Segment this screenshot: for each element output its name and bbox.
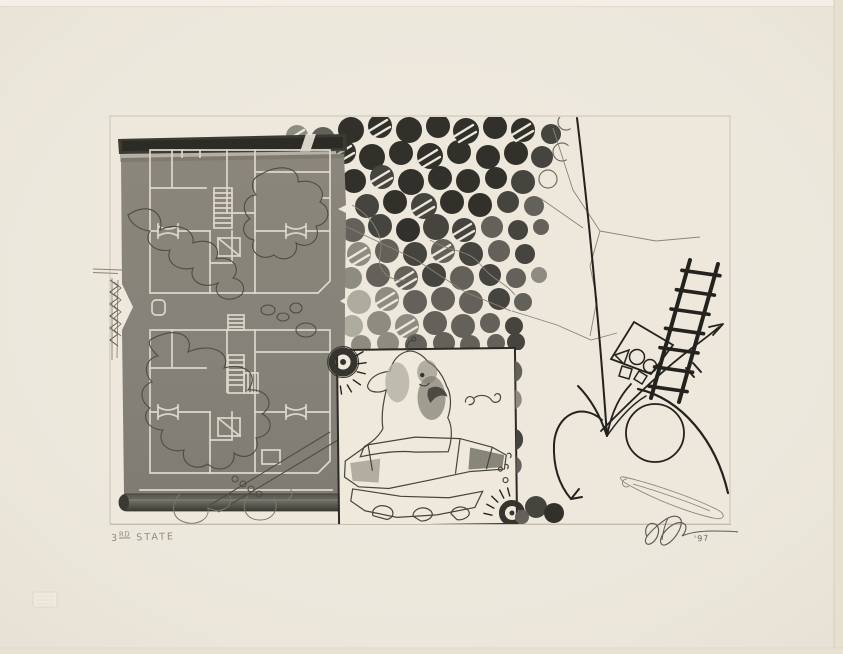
floor-plan-panel bbox=[118, 134, 348, 523]
figure-panel bbox=[327, 336, 524, 526]
state-ordinal: RD bbox=[119, 530, 130, 538]
deckle-edge-top bbox=[0, 0, 843, 7]
paper-sheet: 3RDSTATE '97 bbox=[0, 0, 843, 654]
state-word: STATE bbox=[136, 531, 175, 543]
edition-inscription: 3RDSTATE bbox=[111, 529, 175, 544]
artwork-print bbox=[0, 0, 843, 654]
signature-year: '97 bbox=[694, 534, 710, 544]
deckle-edge-right bbox=[834, 0, 843, 654]
deckle-edge-bottom bbox=[0, 648, 843, 654]
blind-stamp bbox=[33, 592, 57, 607]
